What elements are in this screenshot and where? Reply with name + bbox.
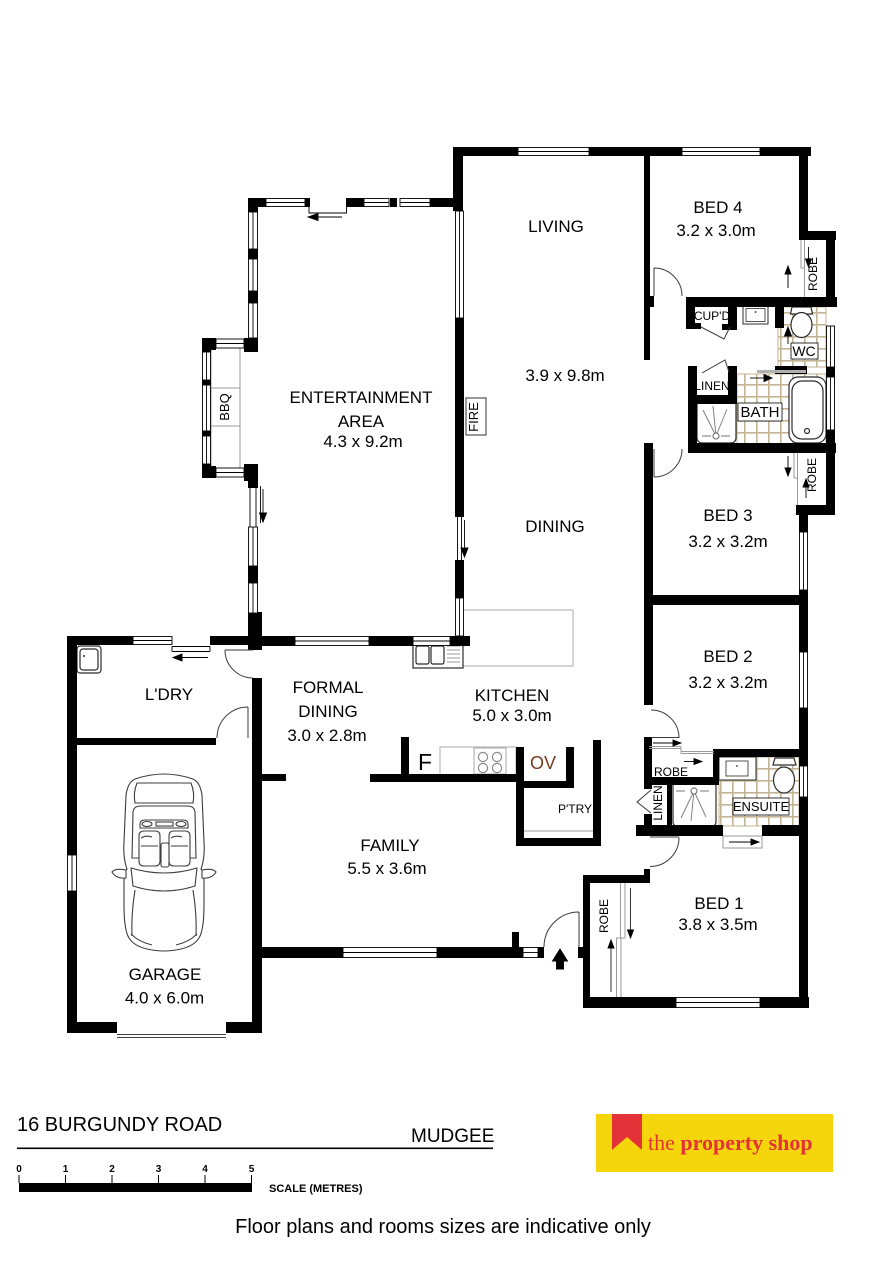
svg-text:5.5 x 3.6m: 5.5 x 3.6m — [347, 859, 426, 878]
svg-text:1: 1 — [63, 1164, 69, 1175]
svg-text:DINING: DINING — [525, 517, 585, 536]
svg-text:2: 2 — [109, 1164, 115, 1175]
svg-text:ROBE: ROBE — [805, 458, 819, 492]
svg-text:4: 4 — [202, 1164, 208, 1175]
svg-text:3.2 x 3.2m: 3.2 x 3.2m — [688, 673, 767, 692]
svg-text:5.0 x 3.0m: 5.0 x 3.0m — [472, 706, 551, 725]
svg-text:BBQ: BBQ — [217, 393, 232, 420]
svg-text:F: F — [418, 749, 432, 775]
svg-text:ENTERTAINMENT: ENTERTAINMENT — [290, 388, 433, 407]
svg-text:MUDGEE: MUDGEE — [411, 1126, 494, 1147]
svg-text:0: 0 — [16, 1164, 22, 1175]
svg-text:OV: OV — [530, 753, 556, 773]
svg-text:LINEN: LINEN — [694, 379, 729, 393]
svg-text:Floor plans and rooms sizes ar: Floor plans and rooms sizes are indicati… — [235, 1216, 651, 1238]
svg-text:P'TRY: P'TRY — [558, 802, 592, 816]
svg-text:SCALE (METRES): SCALE (METRES) — [269, 1183, 363, 1195]
svg-text:3.8 x 3.5m: 3.8 x 3.5m — [678, 915, 757, 934]
svg-text:KITCHEN: KITCHEN — [475, 686, 550, 705]
svg-text:AREA: AREA — [338, 412, 385, 431]
svg-text:L'DRY: L'DRY — [145, 685, 193, 704]
svg-text:BATH: BATH — [741, 404, 780, 421]
svg-text:BED 2: BED 2 — [703, 647, 752, 666]
svg-text:ENSUITE: ENSUITE — [733, 799, 790, 814]
svg-text:BED 4: BED 4 — [693, 198, 742, 217]
svg-text:4.0 x 6.0m: 4.0 x 6.0m — [125, 989, 204, 1008]
svg-text:FORMAL: FORMAL — [293, 678, 364, 697]
svg-text:4.3 x 9.2m: 4.3 x 9.2m — [323, 432, 402, 451]
svg-text:3.2 x 3.2m: 3.2 x 3.2m — [688, 532, 767, 551]
svg-text:the property shop: the property shop — [648, 1130, 813, 1155]
svg-text:WC: WC — [792, 343, 815, 359]
svg-text:3.9 x 9.8m: 3.9 x 9.8m — [525, 366, 604, 385]
svg-text:ROBE: ROBE — [806, 257, 820, 291]
svg-text:ROBE: ROBE — [597, 899, 611, 933]
svg-text:5: 5 — [249, 1164, 255, 1175]
svg-text:FAMILY: FAMILY — [360, 836, 419, 855]
svg-text:DINING: DINING — [298, 702, 358, 721]
svg-text:BED 1: BED 1 — [694, 894, 743, 913]
svg-text:LINEN: LINEN — [651, 785, 665, 820]
svg-text:BED 3: BED 3 — [703, 506, 752, 525]
svg-text:ROBE: ROBE — [654, 765, 688, 779]
svg-text:3.2 x 3.0m: 3.2 x 3.0m — [676, 221, 755, 240]
svg-text:LIVING: LIVING — [528, 217, 584, 236]
svg-text:3: 3 — [156, 1164, 162, 1175]
svg-text:FIRE: FIRE — [466, 402, 481, 432]
svg-text:16 BURGUNDY ROAD: 16 BURGUNDY ROAD — [17, 1114, 222, 1136]
svg-text:3.0 x 2.8m: 3.0 x 2.8m — [287, 726, 366, 745]
svg-text:CUP'D: CUP'D — [694, 309, 731, 323]
svg-text:GARAGE: GARAGE — [129, 965, 202, 984]
